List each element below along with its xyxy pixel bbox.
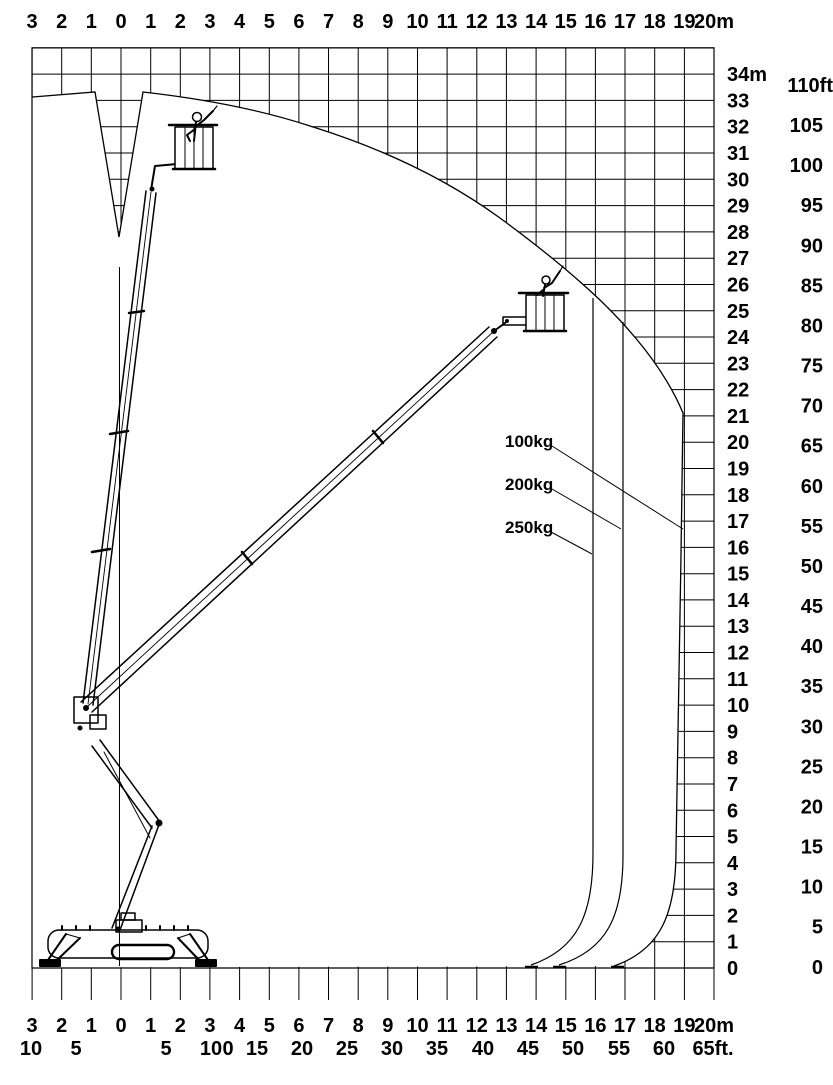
right-axis-meter-label: 34m — [727, 64, 767, 86]
right-axis-feet-label: 95 — [801, 195, 823, 217]
bottom-axis-feet-label: 65ft. — [692, 1038, 733, 1060]
right-axis-feet-label: 110ft — [787, 75, 833, 97]
right-axis-meter-label: 0 — [727, 958, 738, 980]
top-axis-label: 15 — [555, 11, 577, 33]
top-axis-label: 1 — [86, 11, 97, 33]
bottom-axis-feet-label: 10 — [20, 1038, 42, 1060]
bottom-axis-meter-label: 14 — [525, 1015, 548, 1037]
turret-pivot — [116, 927, 121, 932]
label-100kg: 100kg — [505, 432, 553, 451]
bottom-axis-feet-label: 25 — [336, 1038, 358, 1060]
right-axis-feet-label: 100 — [790, 155, 823, 177]
label-250kg: 250kg — [505, 518, 553, 537]
right-axis-meter-label: 20 — [727, 432, 749, 454]
working-envelope-diagram: 100kg 200kg 250kg 3210123456789101112131… — [0, 0, 833, 1085]
right-axis-feet-label: 15 — [801, 837, 823, 859]
right-axis-meter-label: 26 — [727, 274, 749, 296]
right-axis-meter-label: 23 — [727, 353, 749, 375]
bottom-axis-meter-label: 13 — [495, 1015, 517, 1037]
top-axis-label: 1 — [145, 11, 156, 33]
right-axis-feet-label: 75 — [801, 356, 823, 378]
basket-outreach — [519, 293, 568, 331]
bottom-axis-feet-label: 50 — [562, 1038, 584, 1060]
right-axis-meter-label: 3 — [727, 879, 738, 901]
right-axis-meter-label: 21 — [727, 406, 749, 428]
diagram-canvas: 100kg 200kg 250kg 3210123456789101112131… — [0, 0, 833, 1085]
right-axis-meter-label: 6 — [727, 800, 738, 822]
bottom-axis-meter-labels: 32101234567891011121314151617181920m — [26, 1015, 734, 1037]
bottom-axis-meter-label: 1 — [86, 1015, 97, 1037]
right-axis-feet-label: 5 — [812, 917, 823, 939]
right-axis-feet-label: 85 — [801, 275, 823, 297]
right-axis-meter-label: 1 — [727, 932, 738, 954]
right-axis-meter-label: 27 — [727, 248, 749, 270]
bottom-axis-meter-label: 20m — [694, 1015, 734, 1037]
right-axis-meter-label: 18 — [727, 485, 749, 507]
bottom-axis-feet-label: 55 — [608, 1038, 630, 1060]
top-axis-label: 18 — [644, 11, 666, 33]
top-axis-label: 20m — [694, 11, 734, 33]
bottom-axis-meter-label: 11 — [437, 1015, 458, 1037]
elbow-pivot — [156, 820, 163, 827]
bottom-axis-meter-label: 8 — [353, 1015, 364, 1037]
top-axis-label: 0 — [115, 11, 126, 33]
right-axis-feet-label: 55 — [801, 516, 823, 538]
right-axis-meter-label: 24 — [727, 327, 750, 349]
right-axis-meter-label: 13 — [727, 616, 749, 638]
bottom-axis-feet-label: 5 — [70, 1038, 81, 1060]
bottom-axis-ticks — [32, 968, 714, 1000]
right-axis-feet-label: 0 — [812, 957, 823, 979]
bottom-axis-meter-label: 4 — [234, 1015, 246, 1037]
right-axis-feet-label: 105 — [790, 115, 823, 137]
outrigger-foot-left — [40, 960, 60, 966]
top-axis-label: 16 — [584, 11, 606, 33]
right-axis-feet-label: 35 — [801, 676, 823, 698]
right-axis-feet-label: 50 — [801, 556, 823, 578]
bottom-axis-meter-label: 0 — [115, 1015, 126, 1037]
bottom-axis-feet-label: 35 — [426, 1038, 448, 1060]
bottom-axis-feet-label: 30 — [381, 1038, 403, 1060]
bottom-axis-meter-label: 5 — [264, 1015, 275, 1037]
right-axis-feet-label: 70 — [801, 396, 823, 418]
right-axis-meter-label: 25 — [727, 301, 749, 323]
right-axis-feet-label: 40 — [801, 636, 823, 658]
top-axis-label: 4 — [234, 11, 246, 33]
top-axis-label: 13 — [495, 11, 517, 33]
bottom-axis-meter-label: 1 — [145, 1015, 156, 1037]
right-axis-meter-label: 32 — [727, 117, 749, 139]
right-axis-feet-label: 45 — [801, 596, 823, 618]
top-axis-label: 11 — [437, 11, 458, 33]
bottom-axis-meter-label: 2 — [56, 1015, 67, 1037]
right-axis-meter-label: 15 — [727, 564, 749, 586]
envelope-fill — [33, 92, 684, 968]
top-axis-label: 9 — [382, 11, 393, 33]
top-axis-label: 12 — [466, 11, 488, 33]
top-axis-label: 19 — [673, 11, 695, 33]
bottom-axis-feet-label: 15 — [246, 1038, 268, 1060]
bottom-axis-meter-label: 9 — [382, 1015, 393, 1037]
bottom-axis-meter-label: 7 — [323, 1015, 334, 1037]
top-axis-label: 8 — [353, 11, 364, 33]
top-axis-label: 14 — [525, 11, 548, 33]
right-axis-feet-label: 65 — [801, 436, 823, 458]
right-axis-feet-label: 80 — [801, 315, 823, 337]
right-axis-meter-label: 14 — [727, 590, 750, 612]
bottom-axis-feet-label: 40 — [472, 1038, 494, 1060]
bottom-axis-feet-label: 20 — [291, 1038, 313, 1060]
bottom-axis-meter-label: 18 — [644, 1015, 666, 1037]
top-axis-label: 2 — [175, 11, 186, 33]
right-axis-meter-label: 5 — [727, 827, 738, 849]
right-axis-meter-label: 8 — [727, 748, 738, 770]
bottom-axis-feet-label: 60 — [653, 1038, 675, 1060]
right-axis-meter-label: 22 — [727, 380, 749, 402]
right-axis-feet-labels: 110ft10510095908580757065605550454035302… — [787, 75, 833, 979]
top-axis-label: 10 — [406, 11, 428, 33]
right-axis-feet-label: 25 — [801, 756, 823, 778]
right-axis-meter-label: 29 — [727, 196, 749, 218]
right-axis-feet-label: 60 — [801, 476, 823, 498]
bottom-axis-feet-labels: 10551001520253035404550556065ft. — [20, 1038, 734, 1060]
right-axis-meter-label: 30 — [727, 169, 749, 191]
bottom-axis-feet-label: 10 — [200, 1038, 222, 1060]
right-axis-meter-label: 17 — [727, 511, 749, 533]
outrigger-foot-right — [196, 960, 216, 966]
right-axis-meter-labels: 34m3332313029282726252423222120191817161… — [727, 64, 767, 980]
bottom-axis-feet-label: 5 — [160, 1038, 171, 1060]
bottom-axis-feet-label: 0 — [222, 1038, 233, 1060]
right-axis-feet-label: 30 — [801, 716, 823, 738]
bottom-axis-meter-label: 10 — [406, 1015, 428, 1037]
right-axis-meter-label: 31 — [727, 143, 749, 165]
top-axis-label: 17 — [614, 11, 636, 33]
top-axis-label: 2 — [56, 11, 67, 33]
bottom-axis-feet-label: 45 — [517, 1038, 539, 1060]
bottom-axis-meter-label: 16 — [584, 1015, 606, 1037]
bottom-axis-meter-label: 3 — [26, 1015, 37, 1037]
right-axis-meter-label: 12 — [727, 643, 749, 665]
right-axis-meter-label: 2 — [727, 905, 738, 927]
bottom-axis-meter-label: 12 — [466, 1015, 488, 1037]
top-axis-label: 5 — [264, 11, 275, 33]
top-axis-label: 7 — [323, 11, 334, 33]
bottom-axis-meter-label: 3 — [204, 1015, 215, 1037]
top-axis-labels: 32101234567891011121314151617181920m — [26, 11, 734, 33]
bottom-axis-meter-label: 17 — [614, 1015, 636, 1037]
bottom-axis-meter-label: 6 — [293, 1015, 304, 1037]
bottom-axis-meter-label: 15 — [555, 1015, 577, 1037]
right-axis-meter-label: 4 — [727, 853, 739, 875]
top-axis-label: 6 — [293, 11, 304, 33]
right-axis-meter-label: 11 — [727, 669, 748, 691]
right-axis-meter-label: 10 — [727, 695, 749, 717]
right-axis-meter-label: 28 — [727, 222, 749, 244]
bottom-axis-meter-label: 19 — [673, 1015, 695, 1037]
bottom-axis-meter-label: 2 — [175, 1015, 186, 1037]
right-axis-meter-label: 7 — [727, 774, 738, 796]
right-axis-feet-label: 10 — [801, 877, 823, 899]
right-axis-meter-label: 33 — [727, 90, 749, 112]
top-axis-label: 3 — [26, 11, 37, 33]
right-axis-meter-label: 9 — [727, 721, 738, 743]
label-200kg: 200kg — [505, 475, 553, 494]
top-axis-label: 3 — [204, 11, 215, 33]
right-axis-feet-label: 20 — [801, 796, 823, 818]
right-axis-meter-label: 16 — [727, 537, 749, 559]
right-axis-feet-label: 90 — [801, 235, 823, 257]
right-axis-meter-label: 19 — [727, 458, 749, 480]
